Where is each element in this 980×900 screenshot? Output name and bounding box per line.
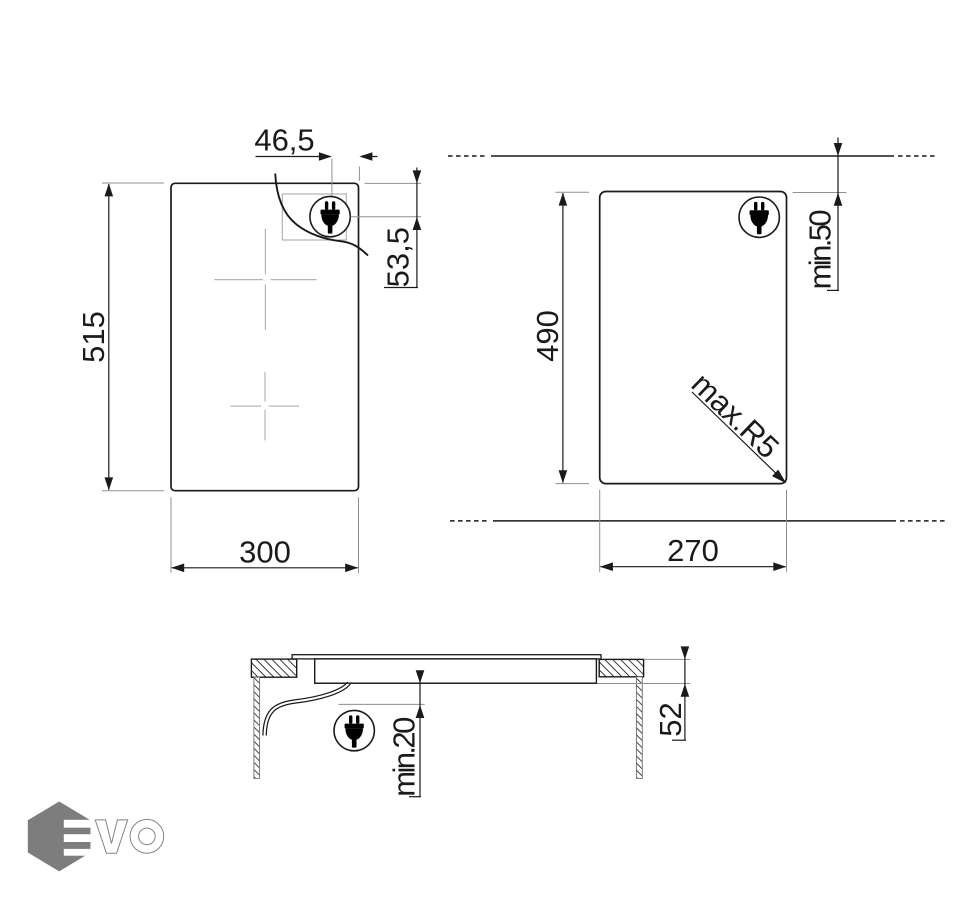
svg-text:46,5: 46,5 <box>254 123 314 158</box>
svg-text:53,5: 53,5 <box>380 227 415 287</box>
svg-text:min.50: min.50 <box>803 210 838 290</box>
svg-text:min.20: min.20 <box>387 717 422 797</box>
svg-text:490: 490 <box>530 310 565 362</box>
svg-text:52: 52 <box>653 702 688 736</box>
svg-text:300: 300 <box>239 535 291 570</box>
svg-text:515: 515 <box>76 311 111 363</box>
svg-text:270: 270 <box>667 533 719 568</box>
